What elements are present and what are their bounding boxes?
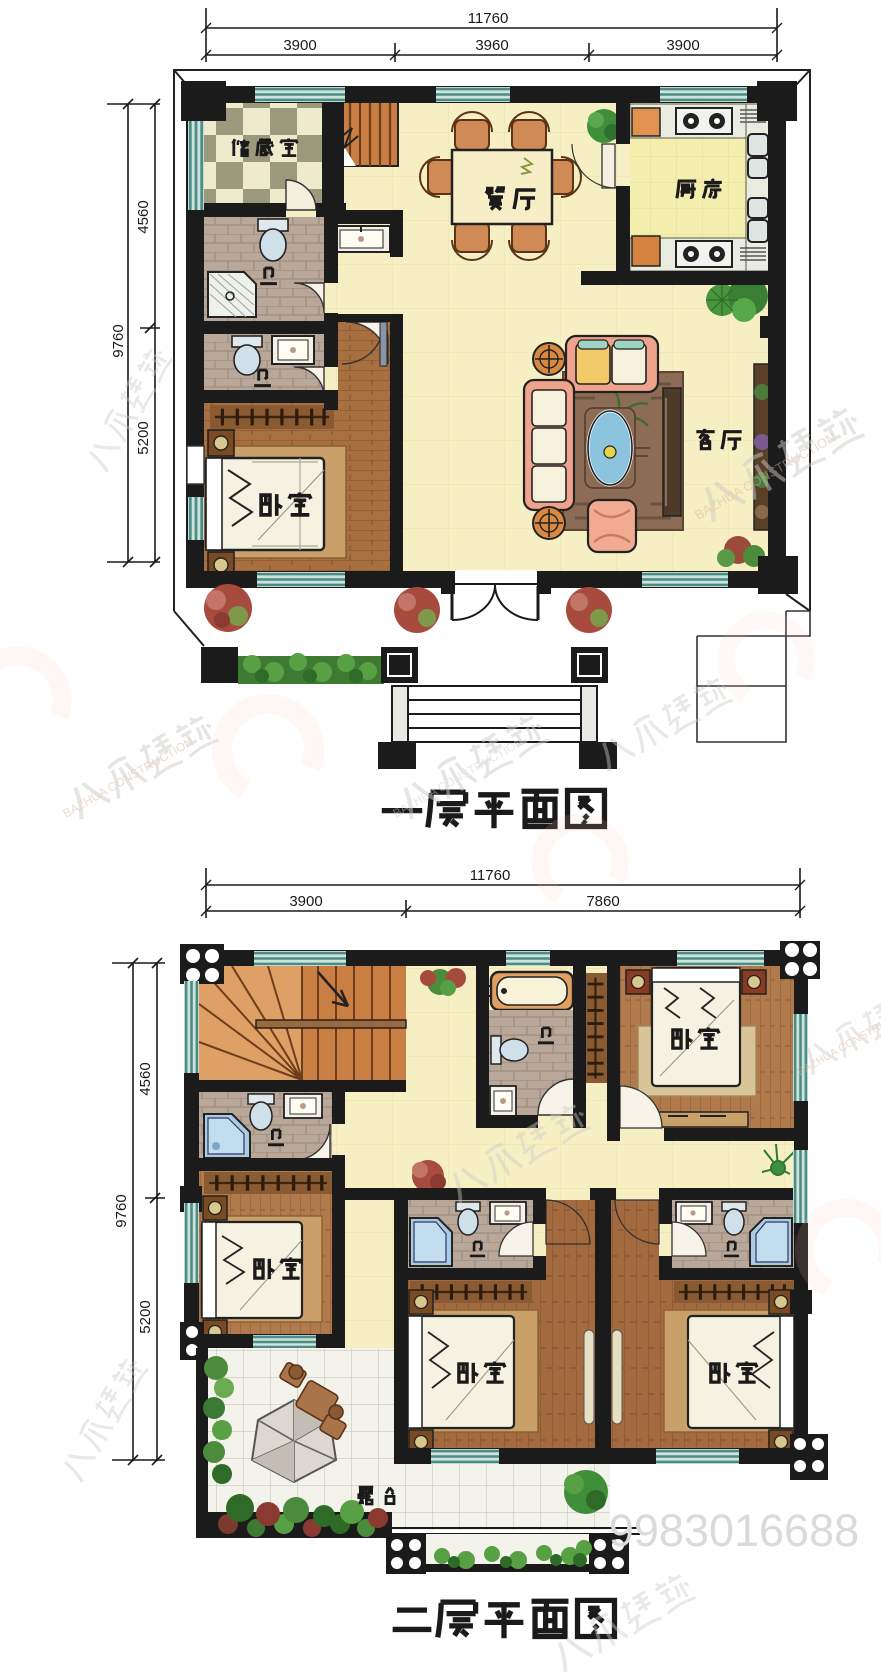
svg-text:7860: 7860 — [586, 893, 619, 910]
svg-text:3900: 3900 — [666, 37, 699, 54]
svg-text:3900: 3900 — [289, 893, 322, 910]
svg-text:9760: 9760 — [110, 324, 127, 357]
svg-text:3900: 3900 — [283, 37, 316, 54]
svg-text:11760: 11760 — [470, 867, 511, 884]
svg-text:5200: 5200 — [135, 421, 152, 454]
svg-text:4560: 4560 — [137, 1062, 154, 1095]
svg-text:9983016688: 9983016688 — [609, 1505, 859, 1556]
svg-text:11760: 11760 — [468, 10, 509, 27]
svg-text:4560: 4560 — [135, 200, 152, 233]
svg-text:5200: 5200 — [137, 1300, 154, 1333]
svg-text:3960: 3960 — [475, 37, 508, 54]
svg-text:9760: 9760 — [113, 1194, 130, 1227]
